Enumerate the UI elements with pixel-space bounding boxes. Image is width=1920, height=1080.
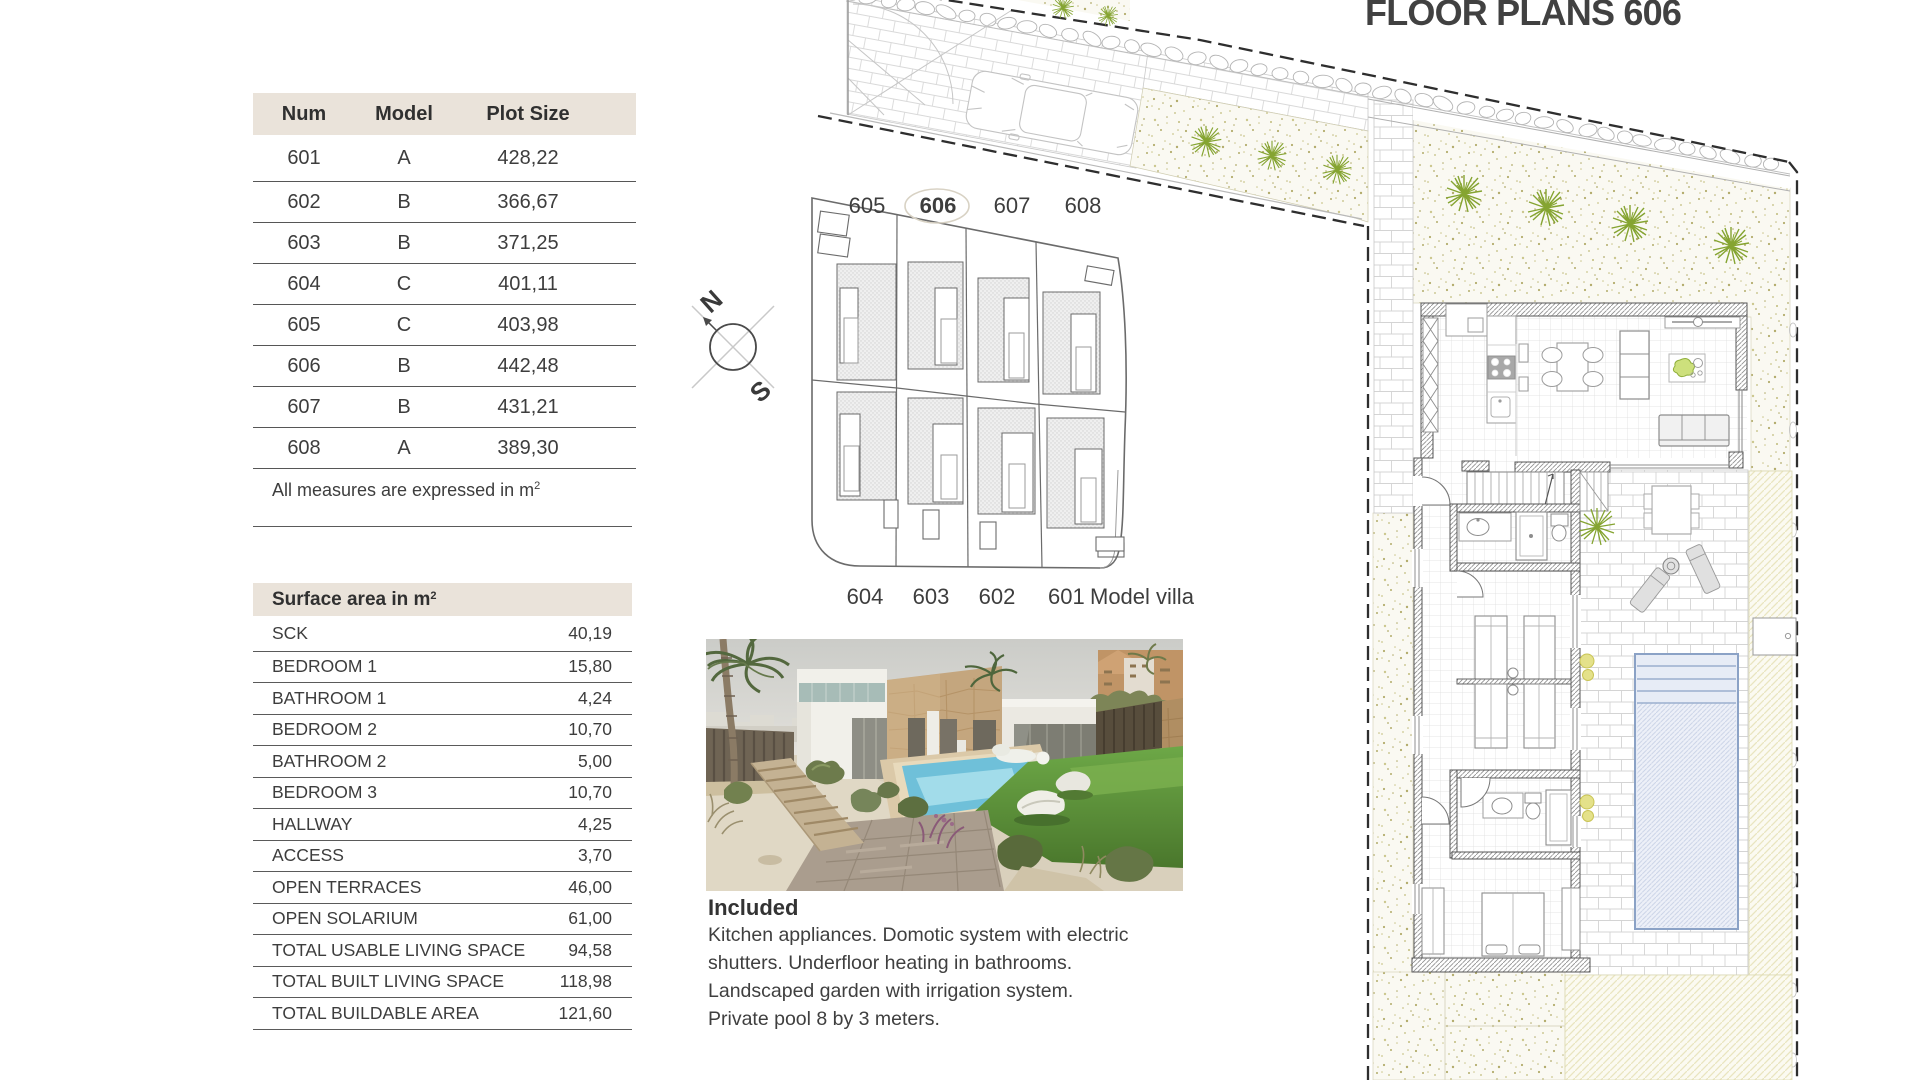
svg-text:601: 601 [1048, 584, 1085, 609]
svg-text:Model villa: Model villa [1090, 584, 1195, 609]
svg-text:603: 603 [913, 584, 950, 609]
svg-text:606: 606 [920, 193, 957, 218]
svg-text:608: 608 [1065, 193, 1102, 218]
svg-text:602: 602 [979, 584, 1016, 609]
svg-text:605: 605 [849, 193, 886, 218]
svg-text:604: 604 [847, 584, 884, 609]
svg-text:S: S [744, 374, 777, 408]
svg-text:607: 607 [994, 193, 1031, 218]
